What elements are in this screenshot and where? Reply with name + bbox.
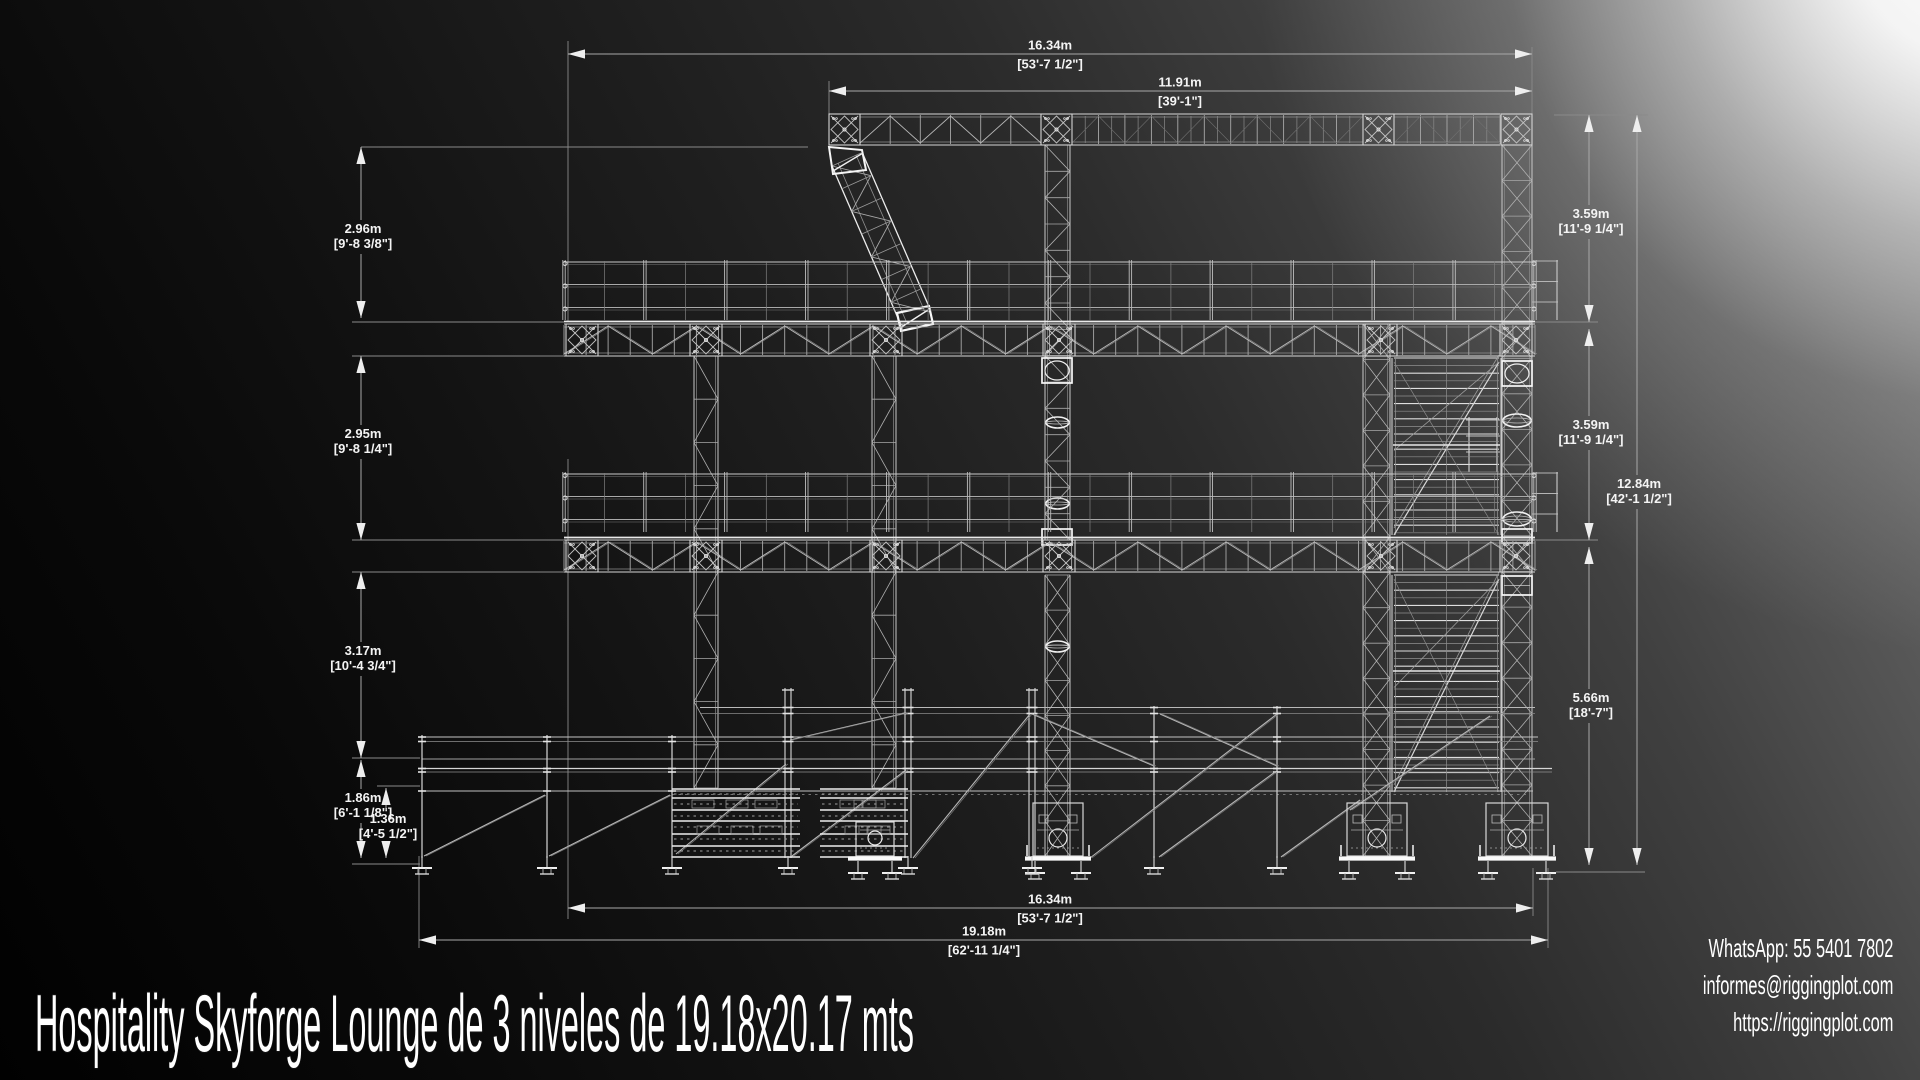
svg-text:[9'-8 3/8"]: [9'-8 3/8"] — [334, 236, 392, 251]
svg-text:1.36m: 1.36m — [370, 811, 407, 826]
svg-text:16.34m: 16.34m — [1028, 892, 1072, 907]
svg-text:[11'-9 1/4"]: [11'-9 1/4"] — [1559, 221, 1624, 236]
svg-text:[4'-5 1/2"]: [4'-5 1/2"] — [359, 826, 417, 841]
svg-text:11.91m: 11.91m — [1158, 75, 1201, 90]
svg-text:[11'-9 1/4"]: [11'-9 1/4"] — [1559, 432, 1624, 447]
svg-text:16.34m: 16.34m — [1028, 38, 1072, 53]
svg-text:1.86m: 1.86m — [345, 790, 382, 805]
svg-text:2.95m: 2.95m — [345, 426, 382, 441]
svg-text:3.17m: 3.17m — [345, 643, 382, 658]
svg-text:[18'-7"]: [18'-7"] — [1569, 705, 1613, 720]
svg-text:[62'-11 1/4"]: [62'-11 1/4"] — [948, 943, 1020, 958]
svg-text:[53'-7 1/2"]: [53'-7 1/2"] — [1017, 57, 1083, 72]
svg-text:[9'-8 1/4"]: [9'-8 1/4"] — [334, 441, 392, 456]
svg-text:[39'-1"]: [39'-1"] — [1158, 94, 1202, 109]
svg-text:[42'-1 1/2"]: [42'-1 1/2"] — [1606, 491, 1672, 506]
svg-text:3.59m: 3.59m — [1573, 417, 1610, 432]
svg-text:12.84m: 12.84m — [1617, 476, 1661, 491]
svg-text:2.96m: 2.96m — [345, 221, 382, 236]
svg-text:3.59m: 3.59m — [1573, 206, 1610, 221]
svg-text:19.18m: 19.18m — [962, 924, 1006, 939]
svg-text:5.66m: 5.66m — [1573, 690, 1610, 705]
svg-text:[10'-4 3/4"]: [10'-4 3/4"] — [330, 658, 396, 673]
svg-text:[53'-7 1/2"]: [53'-7 1/2"] — [1017, 911, 1083, 926]
